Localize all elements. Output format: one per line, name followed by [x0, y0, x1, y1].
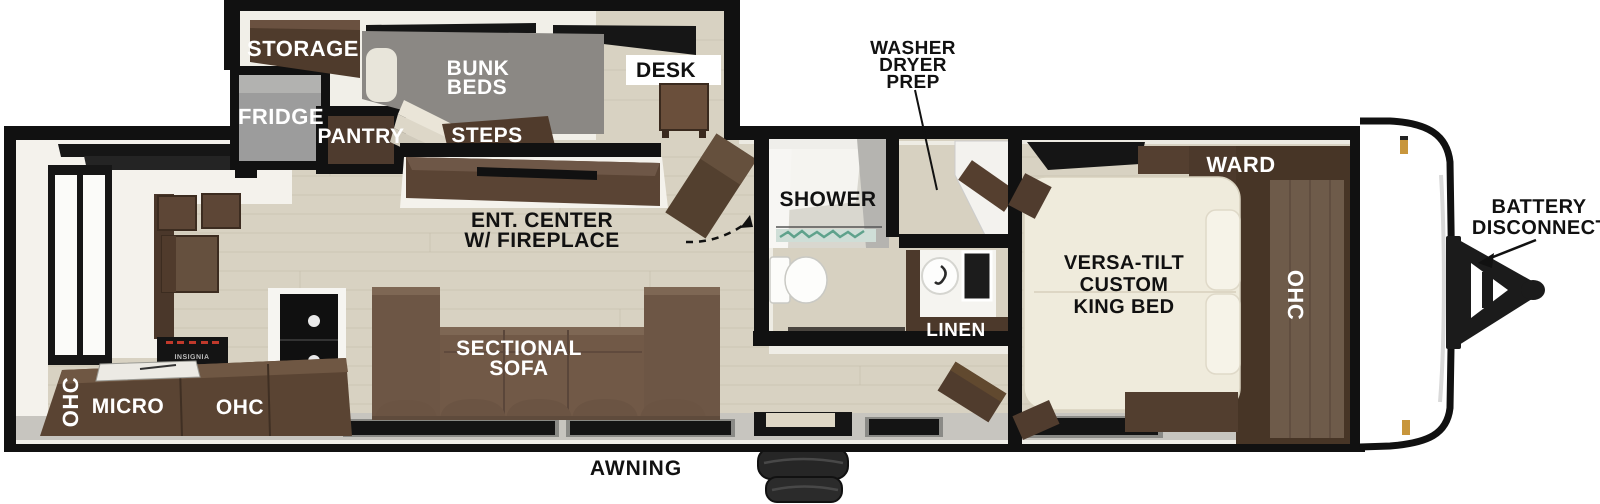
svg-text:AWNING: AWNING: [590, 457, 682, 480]
svg-text:FRIDGE: FRIDGE: [238, 104, 324, 129]
svg-text:PANTRY: PANTRY: [318, 125, 405, 148]
svg-text:MICRO: MICRO: [92, 395, 165, 418]
svg-text:VERSA-TILT: VERSA-TILT: [1064, 252, 1184, 274]
svg-text:BEDS: BEDS: [447, 76, 507, 99]
svg-text:OHC: OHC: [216, 396, 264, 419]
svg-text:STEPS: STEPS: [451, 124, 522, 147]
svg-text:KING BED: KING BED: [1074, 296, 1175, 318]
svg-text:INSIGNIA: INSIGNIA: [174, 354, 209, 361]
svg-text:STORAGE: STORAGE: [247, 36, 359, 61]
svg-text:W/ FIREPLACE: W/ FIREPLACE: [464, 229, 619, 252]
svg-text:SOFA: SOFA: [489, 357, 548, 380]
svg-text:DISCONNECT: DISCONNECT: [1472, 217, 1600, 239]
svg-text:CUSTOM: CUSTOM: [1080, 274, 1169, 296]
svg-text:BATTERY: BATTERY: [1491, 196, 1586, 218]
svg-text:PREP: PREP: [886, 72, 939, 93]
svg-text:OHC: OHC: [1283, 270, 1308, 320]
svg-text:DESK: DESK: [636, 59, 696, 82]
svg-text:LINEN: LINEN: [926, 320, 986, 341]
svg-text:WARD: WARD: [1206, 152, 1275, 177]
svg-text:OHC: OHC: [58, 377, 83, 427]
svg-text:SHOWER: SHOWER: [780, 188, 877, 211]
